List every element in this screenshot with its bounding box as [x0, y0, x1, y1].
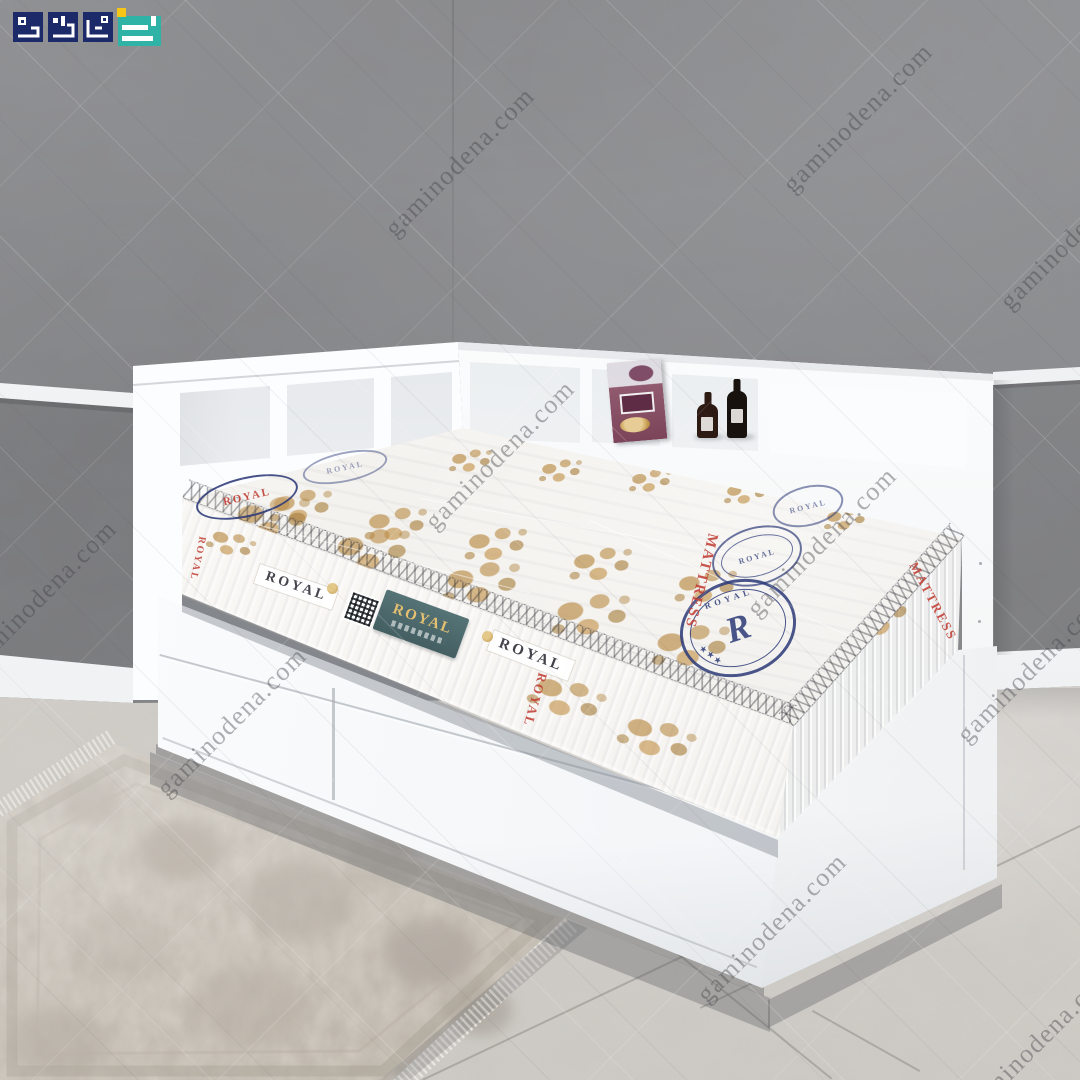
logo-glyph-navy: [13, 12, 113, 42]
logo-glyph-teal: [118, 16, 161, 46]
screw-cap: [978, 620, 981, 623]
bottle-label: [731, 409, 743, 423]
decor-bottle: [697, 404, 718, 438]
damask-motif: [606, 703, 704, 778]
damask-motif: [199, 521, 261, 568]
site-logo: [13, 8, 166, 48]
decor-book: [607, 359, 668, 443]
screw-cap: [979, 562, 982, 565]
product-photo-scene: ROYAL ROYAL ROYAL R ★★★ ROYAL ROYAL ROYA…: [0, 0, 1080, 1080]
damask-motif: [443, 442, 498, 481]
stamp-word: ROYAL: [325, 459, 364, 476]
decor-bottle: [727, 391, 747, 438]
base-right-seam: [963, 655, 965, 870]
gold-medallion-dot: [327, 583, 338, 594]
gold-medallion-dot: [482, 631, 493, 642]
oval-stamp-text: ROYAL: [222, 486, 272, 509]
drawer-gap: [332, 688, 335, 800]
book-plate-art: [619, 416, 650, 434]
wall-corner-shadow: [994, 380, 1014, 655]
bottle-label: [701, 417, 713, 431]
damask-motif: [533, 452, 588, 491]
stamp-word: ROYAL: [788, 497, 827, 515]
book-frame-art: [619, 392, 655, 415]
logo-yellow-square: [117, 8, 126, 17]
